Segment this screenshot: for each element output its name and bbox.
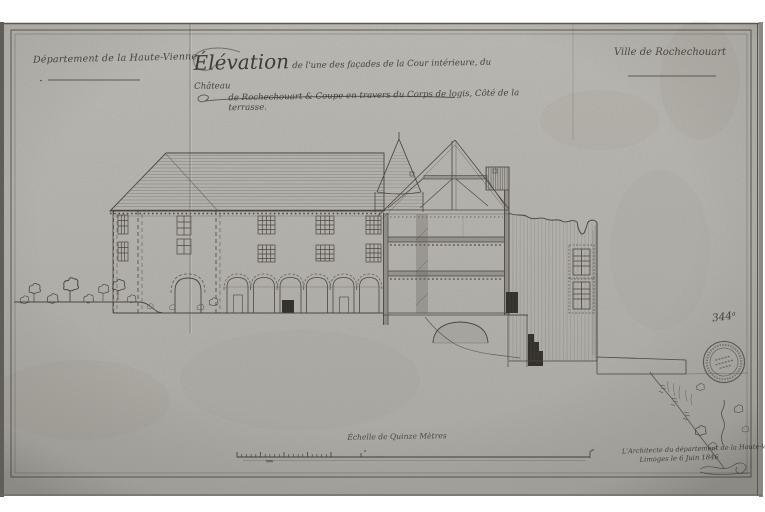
drawing-title: Élévationde l'une des façades de la Cour… — [193, 47, 524, 114]
title-word: Élévation — [193, 49, 289, 75]
scanned-drawing-sheet: Département de la Haute-Vienne Ville de … — [0, 0, 765, 512]
city-label: Ville de Rochechouart — [610, 47, 730, 58]
